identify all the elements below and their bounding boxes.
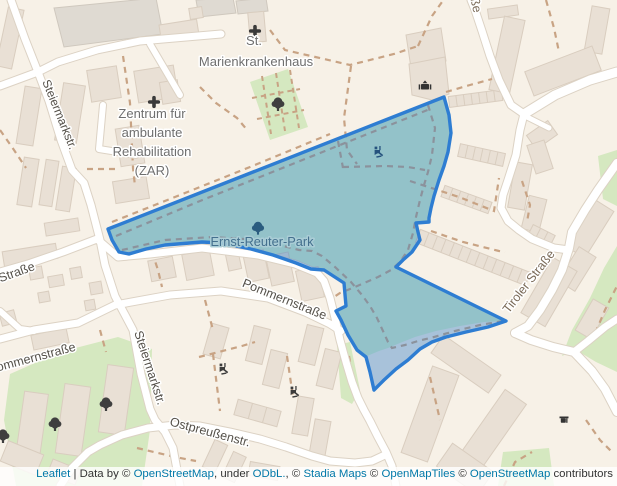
svg-text:ambulante: ambulante bbox=[122, 125, 183, 140]
svg-text:Marienkrankenhaus: Marienkrankenhaus bbox=[199, 54, 314, 69]
svg-text:Ernst-Reuter-Park: Ernst-Reuter-Park bbox=[210, 234, 314, 249]
svg-text:(ZAR): (ZAR) bbox=[135, 163, 170, 178]
svg-text:St.: St. bbox=[246, 33, 262, 48]
svg-text:Rehabilitation: Rehabilitation bbox=[113, 144, 192, 159]
svg-text:Zentrum für: Zentrum für bbox=[118, 106, 186, 121]
